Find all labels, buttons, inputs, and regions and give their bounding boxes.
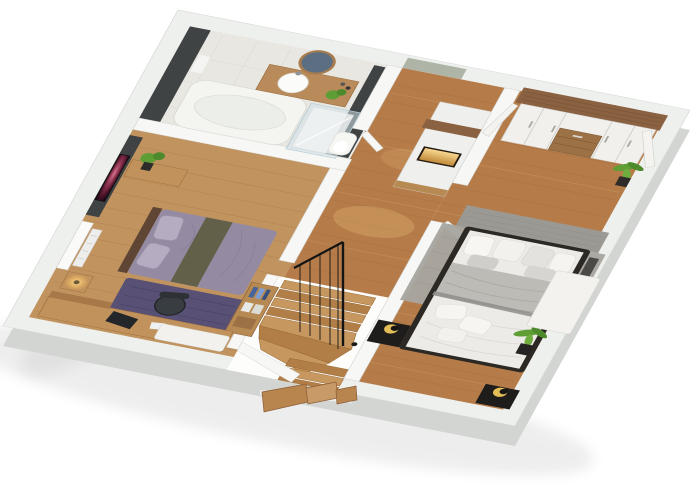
- floorplan-render: [0, 0, 700, 498]
- throw-pillow: [434, 304, 467, 320]
- floor-plan-svg: [0, 0, 700, 498]
